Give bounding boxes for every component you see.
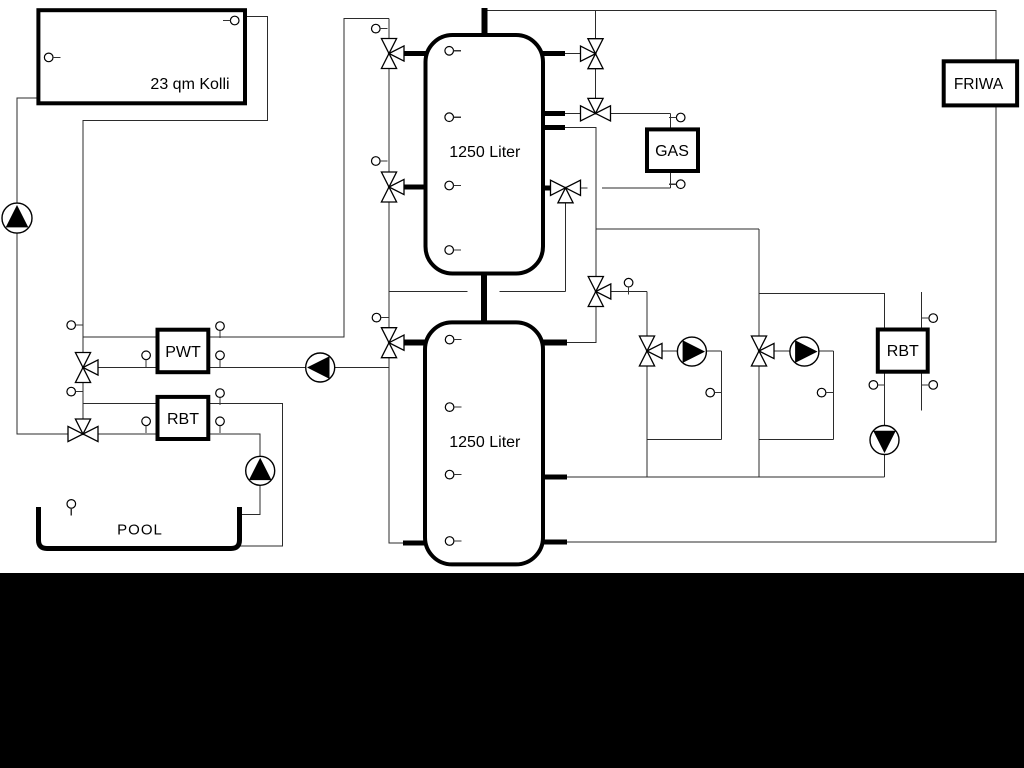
svg-text:FRIWA: FRIWA [954, 76, 1004, 93]
svg-text:PWT: PWT [165, 344, 201, 361]
svg-text:1250 Liter: 1250 Liter [449, 434, 521, 451]
svg-text:RBT: RBT [167, 411, 199, 428]
svg-text:23 qm Kolli: 23 qm Kolli [150, 76, 229, 93]
svg-text:RBT: RBT [887, 343, 919, 360]
svg-text:POOL: POOL [117, 522, 163, 539]
svg-text:GAS: GAS [655, 143, 689, 160]
svg-text:1250 Liter: 1250 Liter [449, 144, 521, 161]
